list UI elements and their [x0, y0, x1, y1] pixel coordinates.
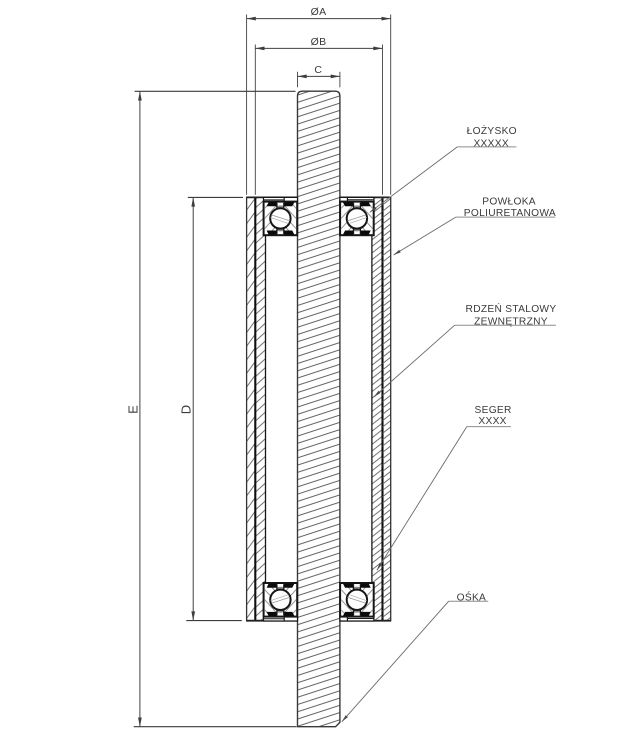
- svg-text:RDZEŃ STALOWY: RDZEŃ STALOWY: [466, 302, 557, 315]
- svg-text:D: D: [179, 405, 194, 414]
- svg-text:ØA: ØA: [311, 6, 327, 18]
- svg-text:E: E: [125, 405, 140, 414]
- svg-text:OŚKA: OŚKA: [457, 591, 487, 604]
- svg-text:C: C: [314, 64, 322, 76]
- svg-text:XXXX: XXXX: [478, 416, 506, 427]
- svg-text:SEGER: SEGER: [475, 405, 512, 416]
- svg-text:XXXXX: XXXXX: [473, 138, 508, 149]
- svg-text:ŁOŻYSKO: ŁOŻYSKO: [467, 124, 517, 137]
- svg-text:POWŁOKA: POWŁOKA: [482, 196, 536, 207]
- svg-text:ØB: ØB: [311, 36, 327, 48]
